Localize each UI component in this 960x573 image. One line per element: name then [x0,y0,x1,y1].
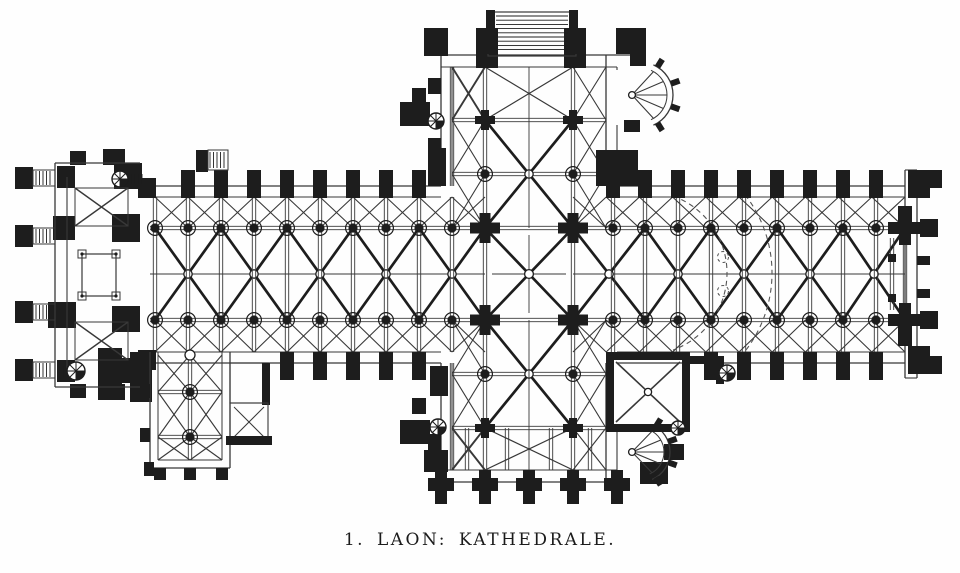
floor-plan-figure [0,0,960,573]
figure-caption: 1. LAON: KATHEDRALE. [0,530,960,550]
cathedral-floor-plan-drawing [0,0,960,573]
scanned-book-page: 1. LAON: KATHEDRALE. [0,0,960,573]
